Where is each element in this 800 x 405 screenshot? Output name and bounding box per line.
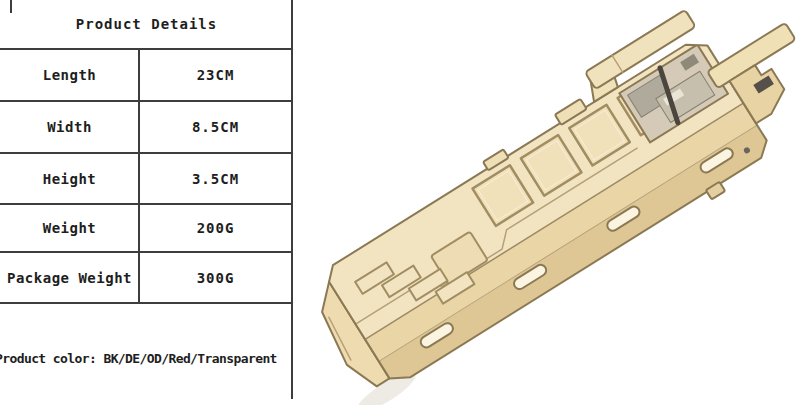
case-body-faces bbox=[323, 35, 773, 387]
table-title: Product Details bbox=[0, 0, 293, 48]
row-weight-label: Weight bbox=[0, 205, 139, 251]
row-width-value: 8.5CM bbox=[139, 102, 292, 152]
row-length-value: 23CM bbox=[139, 50, 292, 100]
product-color-note: Product color: BK/DE/OD/Red/Transparent bbox=[0, 344, 297, 372]
row-length-label: Length bbox=[0, 50, 139, 100]
row-width-label: Width bbox=[0, 102, 139, 152]
product-image bbox=[300, 0, 800, 405]
row-height-value: 3.5CM bbox=[139, 154, 292, 203]
row-weight-value: 200G bbox=[139, 205, 292, 251]
row-height-label: Height bbox=[0, 154, 139, 203]
row-package-weight-label: Package Weight bbox=[0, 253, 139, 302]
table-row-border bbox=[0, 302, 293, 304]
row-package-weight-value: 300G bbox=[139, 253, 292, 302]
product-image-svg bbox=[300, 0, 800, 405]
product-infographic: Product Details Length 23CM Width 8.5CM … bbox=[0, 0, 800, 405]
